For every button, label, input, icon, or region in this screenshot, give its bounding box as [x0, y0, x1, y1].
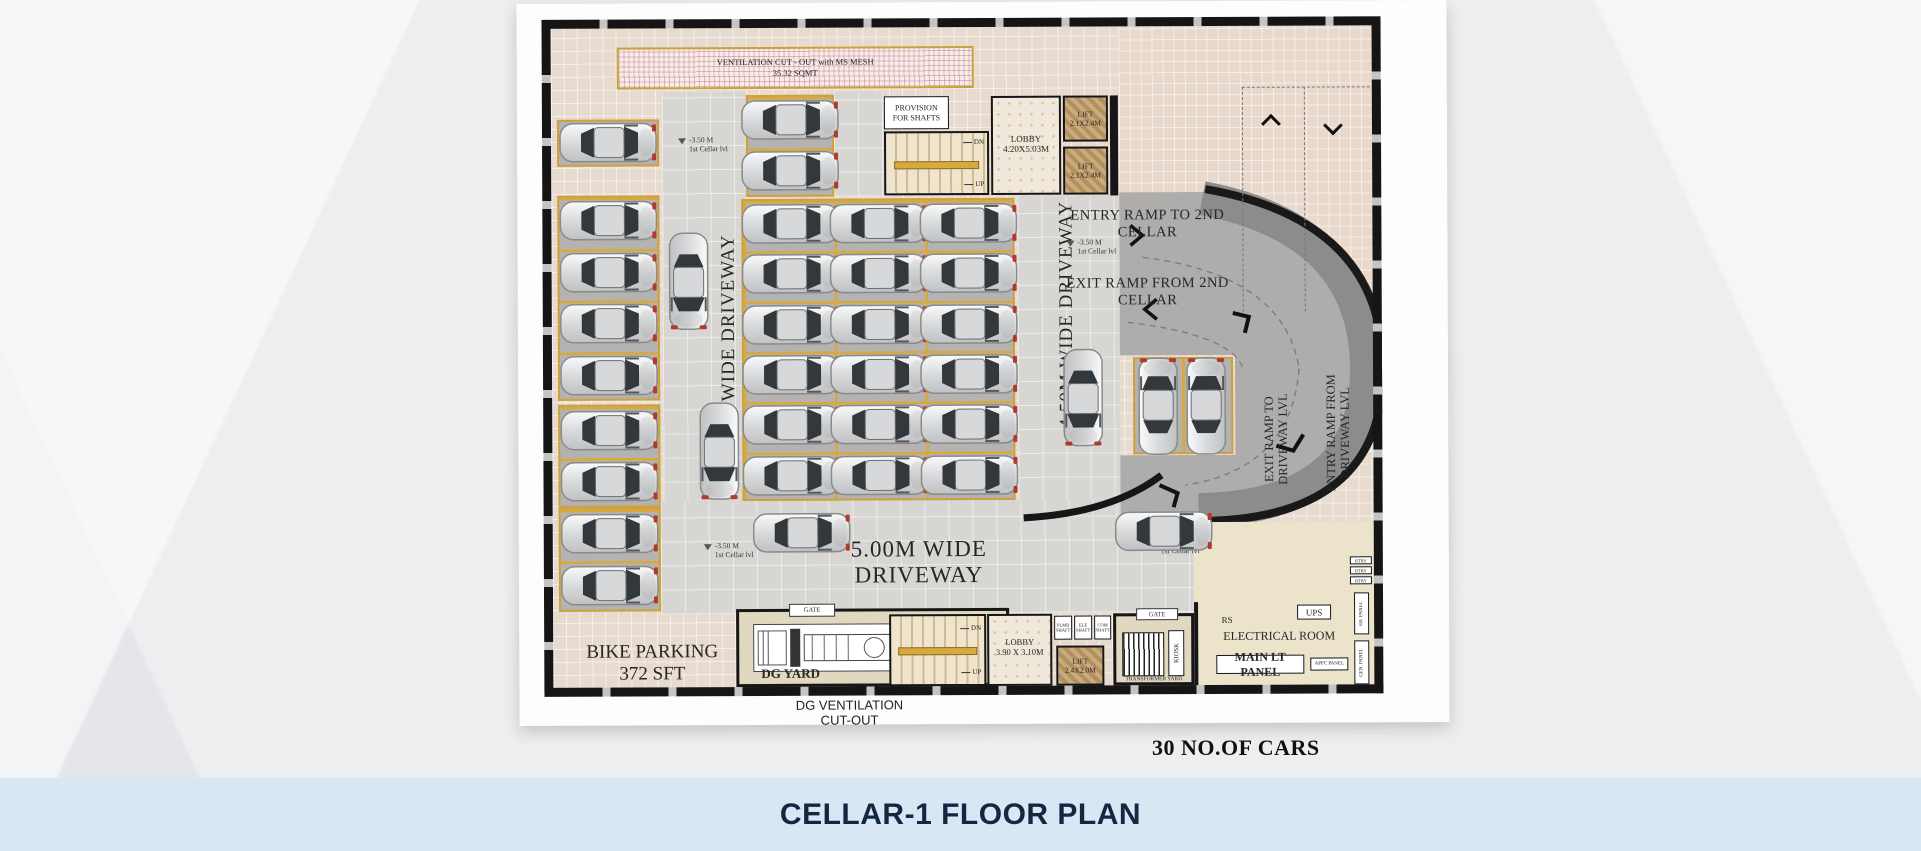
transformer-gate: GATE: [1136, 608, 1178, 620]
level-marker-icon: [704, 544, 712, 550]
shaft-ele-label: ELE SHAFT: [1075, 623, 1091, 633]
dn-label: DN: [974, 138, 984, 146]
btry-label-2: BTRY: [1355, 568, 1367, 573]
stall-block-middle: [741, 198, 1015, 501]
dg-vent-line2: CUT-OUT: [770, 713, 930, 729]
lift-bottom-line1: LIFT: [1065, 657, 1096, 666]
lobby-bottom-line2: 3.90 X 3.10M: [987, 647, 1052, 657]
ventilation-cutout: VENTILATION CUT - OUT with MS MESH 35.32…: [617, 46, 974, 90]
page: { "title_band": { "label": "CELLAR-1 FLO…: [0, 0, 1921, 851]
provision-label-line2: FOR SHAFTS: [893, 113, 940, 123]
level-marker-text: -3.50 M1st Cellar lvl: [689, 135, 728, 153]
apfc-panel-label: APFC PANEL: [1315, 661, 1344, 666]
shaft-plmb-label: PLMB SHAFT: [1055, 623, 1071, 633]
dn-arrow-line-2: [960, 628, 969, 629]
btry-box-1: BTRY: [1350, 556, 1372, 564]
eb-panel-label: EB. PANEL: [1359, 601, 1364, 626]
entry-ramp-2nd-line1: ENTRY RAMP TO 2ND: [1047, 207, 1247, 225]
shaft-ele: ELE SHAFT: [1074, 616, 1092, 640]
dg-yard-label: DG YARD: [761, 666, 820, 682]
btry-label-1: BTRY: [1355, 558, 1367, 563]
level-marker-icon: [678, 138, 686, 144]
dg-vent-line1: DG VENTILATION: [769, 698, 929, 714]
lobby-top-label-line2: 4.20X5.03M: [991, 144, 1061, 155]
up-label-2: UP: [972, 668, 981, 676]
lift-bottom-line2: 2.4X2.0M: [1065, 666, 1096, 675]
title-band: CELLAR-1 FLOOR PLAN: [0, 778, 1921, 851]
stall-pair-ramp: [1133, 357, 1233, 454]
gen-panel-label: GEN. PANEL: [1359, 648, 1364, 676]
exit-ramp-driveway-line2: DRIVEWAY LVL: [1276, 359, 1291, 519]
level-marker-icon: [1150, 540, 1158, 546]
electrical-room-label: ELECTRICAL ROOM: [1199, 629, 1359, 643]
up-label: UP: [975, 180, 984, 188]
exit-ramp-driveway-line1: EXIT RAMP TO: [1262, 359, 1277, 519]
kiosk-label: KIOSK: [1173, 643, 1180, 663]
dg-gate: GATE: [789, 604, 835, 617]
level-marker-icon: [1066, 241, 1074, 247]
dn-arrow-line: [963, 142, 972, 143]
driveway-left-label: 4.50M WIDE DRIVEWAY: [717, 218, 740, 478]
electrical-wall: [1194, 602, 1198, 685]
transformer-yard-room: KIOSK TRANSFORMER YARD: [1113, 613, 1194, 685]
level-marker: -3.50 M1st Cellar lvl: [1150, 537, 1200, 555]
level-marker: -3.50 M1st Cellar lvl: [678, 135, 728, 153]
main-lt-panel-label: MAIN LT PANEL: [1217, 649, 1303, 679]
bike-parking-line1: BIKE PARKING: [562, 641, 742, 664]
lift1-label-line2: 2.1X2.4M: [1070, 118, 1101, 127]
lobby-top-label-line1: LOBBY: [991, 134, 1061, 145]
partition-wall-lifts: [1110, 95, 1118, 195]
entry-ramp-driveway-line1: ENTRY RAMP FROM: [1324, 353, 1339, 513]
car-count-caption: 30 NO.OF CARS: [1152, 735, 1320, 761]
btry-box-3: BTRY: [1350, 576, 1372, 584]
ups-box: UPS: [1297, 604, 1331, 619]
driveway-bottom-label: 5.00M WIDE DRIVEWAY: [794, 536, 1044, 590]
lift2-label-line2: 2.1X2.4M: [1070, 170, 1101, 179]
stair-rail-bottom: [899, 647, 977, 655]
lift2-label-line1: LIFT: [1070, 161, 1101, 170]
transformer-yard-label: TRANSFORMER YARD: [1116, 676, 1191, 682]
lift-bottom: LIFT 2.4X2.0M: [1056, 645, 1104, 685]
dn-label-2: DN: [971, 624, 981, 632]
eb-panel-box: EB. PANEL: [1354, 592, 1369, 634]
ups-label: UPS: [1306, 607, 1323, 617]
shaft-plmb: PLMB SHAFT: [1054, 616, 1072, 640]
wall-right: [1371, 16, 1383, 693]
provision-for-shafts-room: PROVISION FOR SHAFTS: [884, 96, 949, 129]
entry-ramp-driveway-line2: DRIVEWAY LVL: [1338, 353, 1353, 513]
staircase-top: DN UP: [884, 131, 989, 195]
stall-group-mid-top: [746, 95, 834, 197]
provision-label-line1: PROVISION: [893, 103, 940, 113]
ventilation-label-line2: 35.32 SQMT: [717, 67, 874, 78]
floor-plan: VENTILATION CUT - OUT with MS MESH 35.32…: [541, 16, 1383, 720]
lift1-label-line1: LIFT: [1070, 109, 1101, 118]
main-lt-panel-box: MAIN LT PANEL: [1216, 655, 1304, 674]
lift-top-1: LIFT 2.1X2.4M: [1063, 95, 1108, 141]
stall-group-left-3: [558, 404, 660, 507]
stall-group-left-2: [557, 195, 660, 400]
level-marker-text: -3.50 M1st Cellar lvl: [1161, 537, 1200, 555]
staircase-bottom: DN UP: [889, 614, 986, 686]
exit-ramp-2nd-line2: CELLAR: [1048, 292, 1248, 310]
exit-ramp-2nd-line1: EXIT RAMP FROM 2ND: [1048, 275, 1248, 293]
apfc-panel-box: APFC PANEL: [1310, 657, 1348, 670]
level-marker-text: -3.50 M1st Cellar lvl: [715, 541, 754, 559]
level-marker: -3.50 M1st Cellar lvl: [1066, 237, 1116, 255]
btry-box-2: BTRY: [1350, 566, 1372, 574]
rs-label: RS: [1212, 615, 1242, 625]
page-title: CELLAR-1 FLOOR PLAN: [780, 798, 1141, 832]
plan-sheet: VENTILATION CUT - OUT with MS MESH 35.32…: [516, 0, 1449, 726]
bike-parking-line2: 372 SFT: [562, 663, 742, 686]
up-arrow-line: [964, 184, 973, 185]
driveway-top-patch: [834, 91, 887, 196]
level-marker: -3.50 M1st Cellar lvl: [704, 541, 754, 559]
level-marker-text: -3.50 M1st Cellar lvl: [1077, 237, 1116, 255]
stair-rail: [894, 161, 979, 169]
stall-group-left-1: [557, 119, 659, 166]
ventilation-label-line1: VENTILATION CUT - OUT with MS MESH: [717, 57, 874, 68]
transformer-drawing: [1122, 632, 1164, 676]
shaft-com: COM SHAFT: [1094, 615, 1111, 639]
shaft-com-label: COM SHAFT: [1095, 622, 1110, 632]
gen-panel-box: GEN. PANEL: [1354, 640, 1369, 684]
up-arrow-line-2: [961, 672, 970, 673]
driveway-right-label: 4.50M WIDE DRIVEWAY: [1055, 185, 1078, 445]
btry-label-3: BTRY: [1355, 578, 1367, 583]
stall-group-left-4: [559, 507, 661, 611]
kiosk-box: KIOSK: [1168, 630, 1184, 676]
